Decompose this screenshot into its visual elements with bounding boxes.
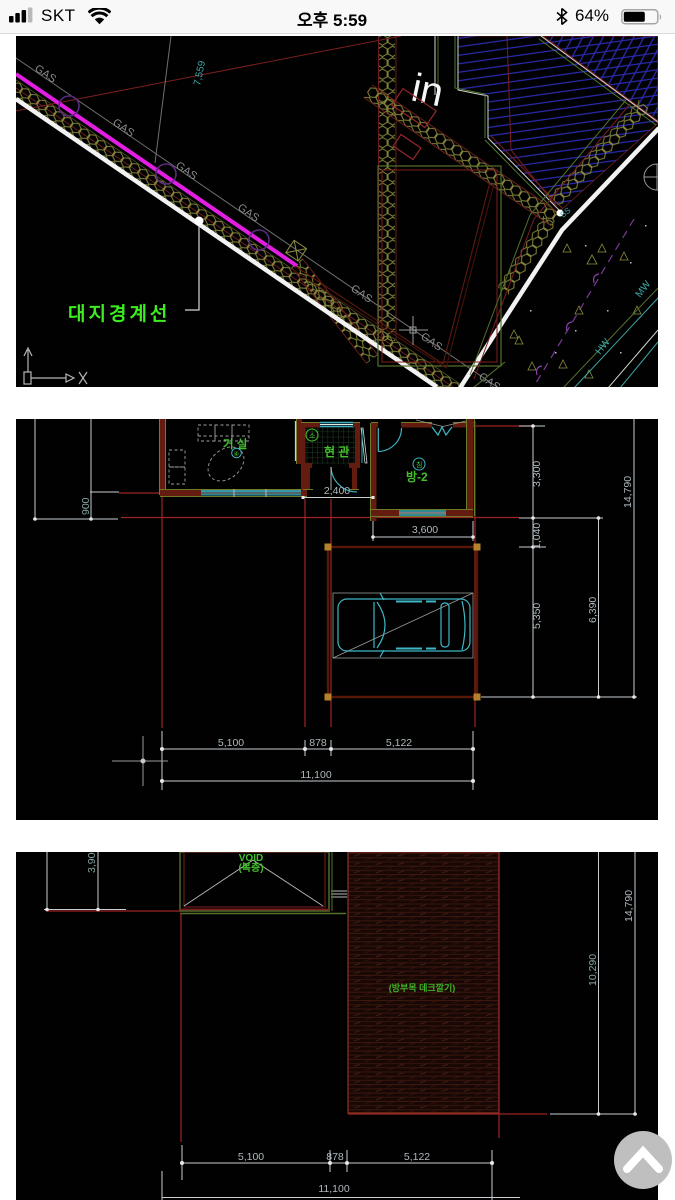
- svg-text:(복층): (복층): [238, 861, 263, 874]
- svg-text:3,300: 3,300: [531, 461, 543, 487]
- svg-text:현 관: 현 관: [324, 444, 349, 459]
- svg-text:(방부목 데크깔기): (방부목 데크깔기): [389, 982, 455, 993]
- svg-text:④: ④: [234, 450, 240, 458]
- svg-text:900: 900: [80, 497, 92, 515]
- svg-text:14,790: 14,790: [623, 890, 635, 922]
- svg-text:소: 소: [309, 432, 316, 440]
- svg-text:5,350: 5,350: [531, 603, 543, 629]
- svg-text:6,390: 6,390: [587, 597, 599, 623]
- svg-text:침: 침: [416, 461, 422, 469]
- svg-text:5,100: 5,100: [238, 1151, 264, 1163]
- svg-text:5,122: 5,122: [404, 1151, 430, 1163]
- svg-text:3,600: 3,600: [412, 524, 438, 536]
- svg-text:2,400: 2,400: [324, 485, 350, 497]
- svg-text:5,122: 5,122: [386, 737, 412, 749]
- svg-text:11,100: 11,100: [300, 769, 331, 781]
- svg-text:14,790: 14,790: [622, 476, 634, 508]
- svg-text:10,290: 10,290: [587, 954, 599, 986]
- svg-text:11,100: 11,100: [318, 1183, 349, 1195]
- svg-text:3,900: 3,900: [86, 852, 98, 873]
- svg-text:5,100: 5,100: [218, 737, 244, 749]
- svg-text:대지경계선: 대지경계선: [68, 303, 170, 325]
- svg-text:방-2: 방-2: [406, 469, 428, 484]
- svg-text:878: 878: [326, 1151, 344, 1163]
- svg-text:878: 878: [309, 737, 327, 749]
- svg-text:1,040: 1,040: [531, 523, 543, 549]
